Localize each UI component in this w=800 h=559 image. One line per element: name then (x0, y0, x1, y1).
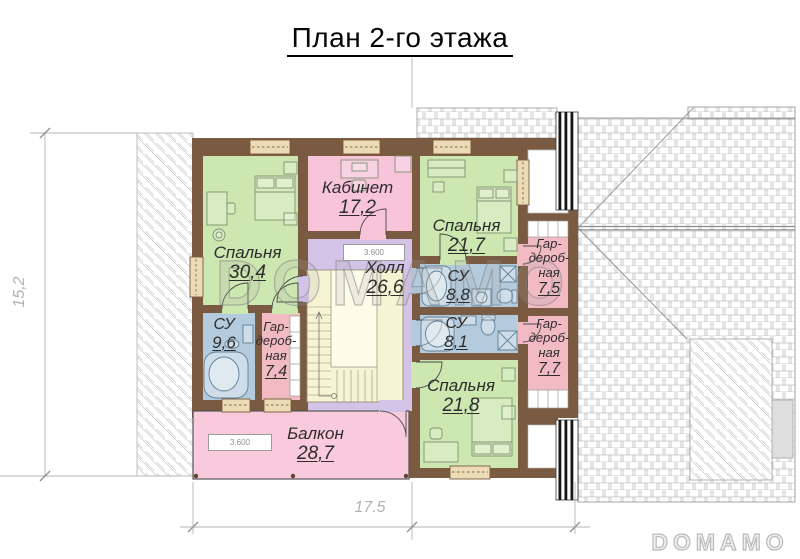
left-roof-hatch (137, 133, 193, 476)
plant (216, 232, 222, 238)
right-roof-hatch-section (690, 339, 772, 480)
chair (430, 428, 442, 439)
cabinet (395, 156, 411, 172)
desk (424, 442, 458, 462)
page-title: План 2-го этажа (287, 22, 514, 57)
void-bottom-right (528, 425, 557, 468)
window (450, 466, 490, 479)
nightstand (433, 182, 444, 192)
floor-plan-page: DOMAMO План 2-го этажа Спальня30,4 Кабин… (0, 0, 800, 559)
elevation-mark-balcony: 3.600 (208, 434, 272, 451)
right-roof (578, 107, 795, 502)
label-wardrobe-2: Гар- дероб- ная7,7 (527, 317, 571, 377)
door-gap (379, 400, 406, 412)
dimension-height: 15,2 (11, 270, 29, 314)
label-office: Кабинет17,2 (315, 179, 400, 219)
label-balcony: Балкон28,7 (278, 425, 353, 465)
chair (227, 203, 235, 214)
chimney (772, 400, 793, 458)
door-gap (360, 230, 386, 240)
nightstand (284, 162, 297, 174)
label-bedroom-1: Спальня30,4 (195, 244, 300, 284)
dimension-width: 17.5 (335, 499, 405, 517)
label-bedroom-2: Спальня21,7 (424, 217, 509, 257)
wardrobe-cabinet (428, 160, 465, 177)
title-wrap: План 2-го этажа (0, 22, 800, 57)
nightstand (284, 213, 297, 225)
label-bathroom-1: СУ8,8 (430, 268, 486, 304)
window (222, 399, 250, 412)
monitor (352, 163, 367, 171)
desk (207, 192, 227, 225)
top-roof-strip (417, 108, 557, 138)
label-bedroom-3: Спальня21,8 (416, 377, 506, 417)
elevation-mark-hall: 3.600 (343, 244, 405, 261)
label-hall: Холл26,6 (354, 259, 416, 299)
door-gap (411, 320, 421, 346)
terrace-slats-top (556, 112, 578, 210)
window (264, 399, 291, 412)
watermark-corner: DOMAMO (645, 529, 795, 556)
nightstand (504, 170, 517, 182)
label-bathroom-3: СУ9,6 (198, 316, 250, 352)
corner-bathtub (209, 357, 239, 391)
label-bathroom-2: СУ8,1 (428, 315, 484, 351)
label-wardrobe-3: Гар- дероб- ная7,4 (253, 320, 299, 380)
label-wardrobe-1: Гар- дероб- ная7,5 (527, 237, 571, 297)
